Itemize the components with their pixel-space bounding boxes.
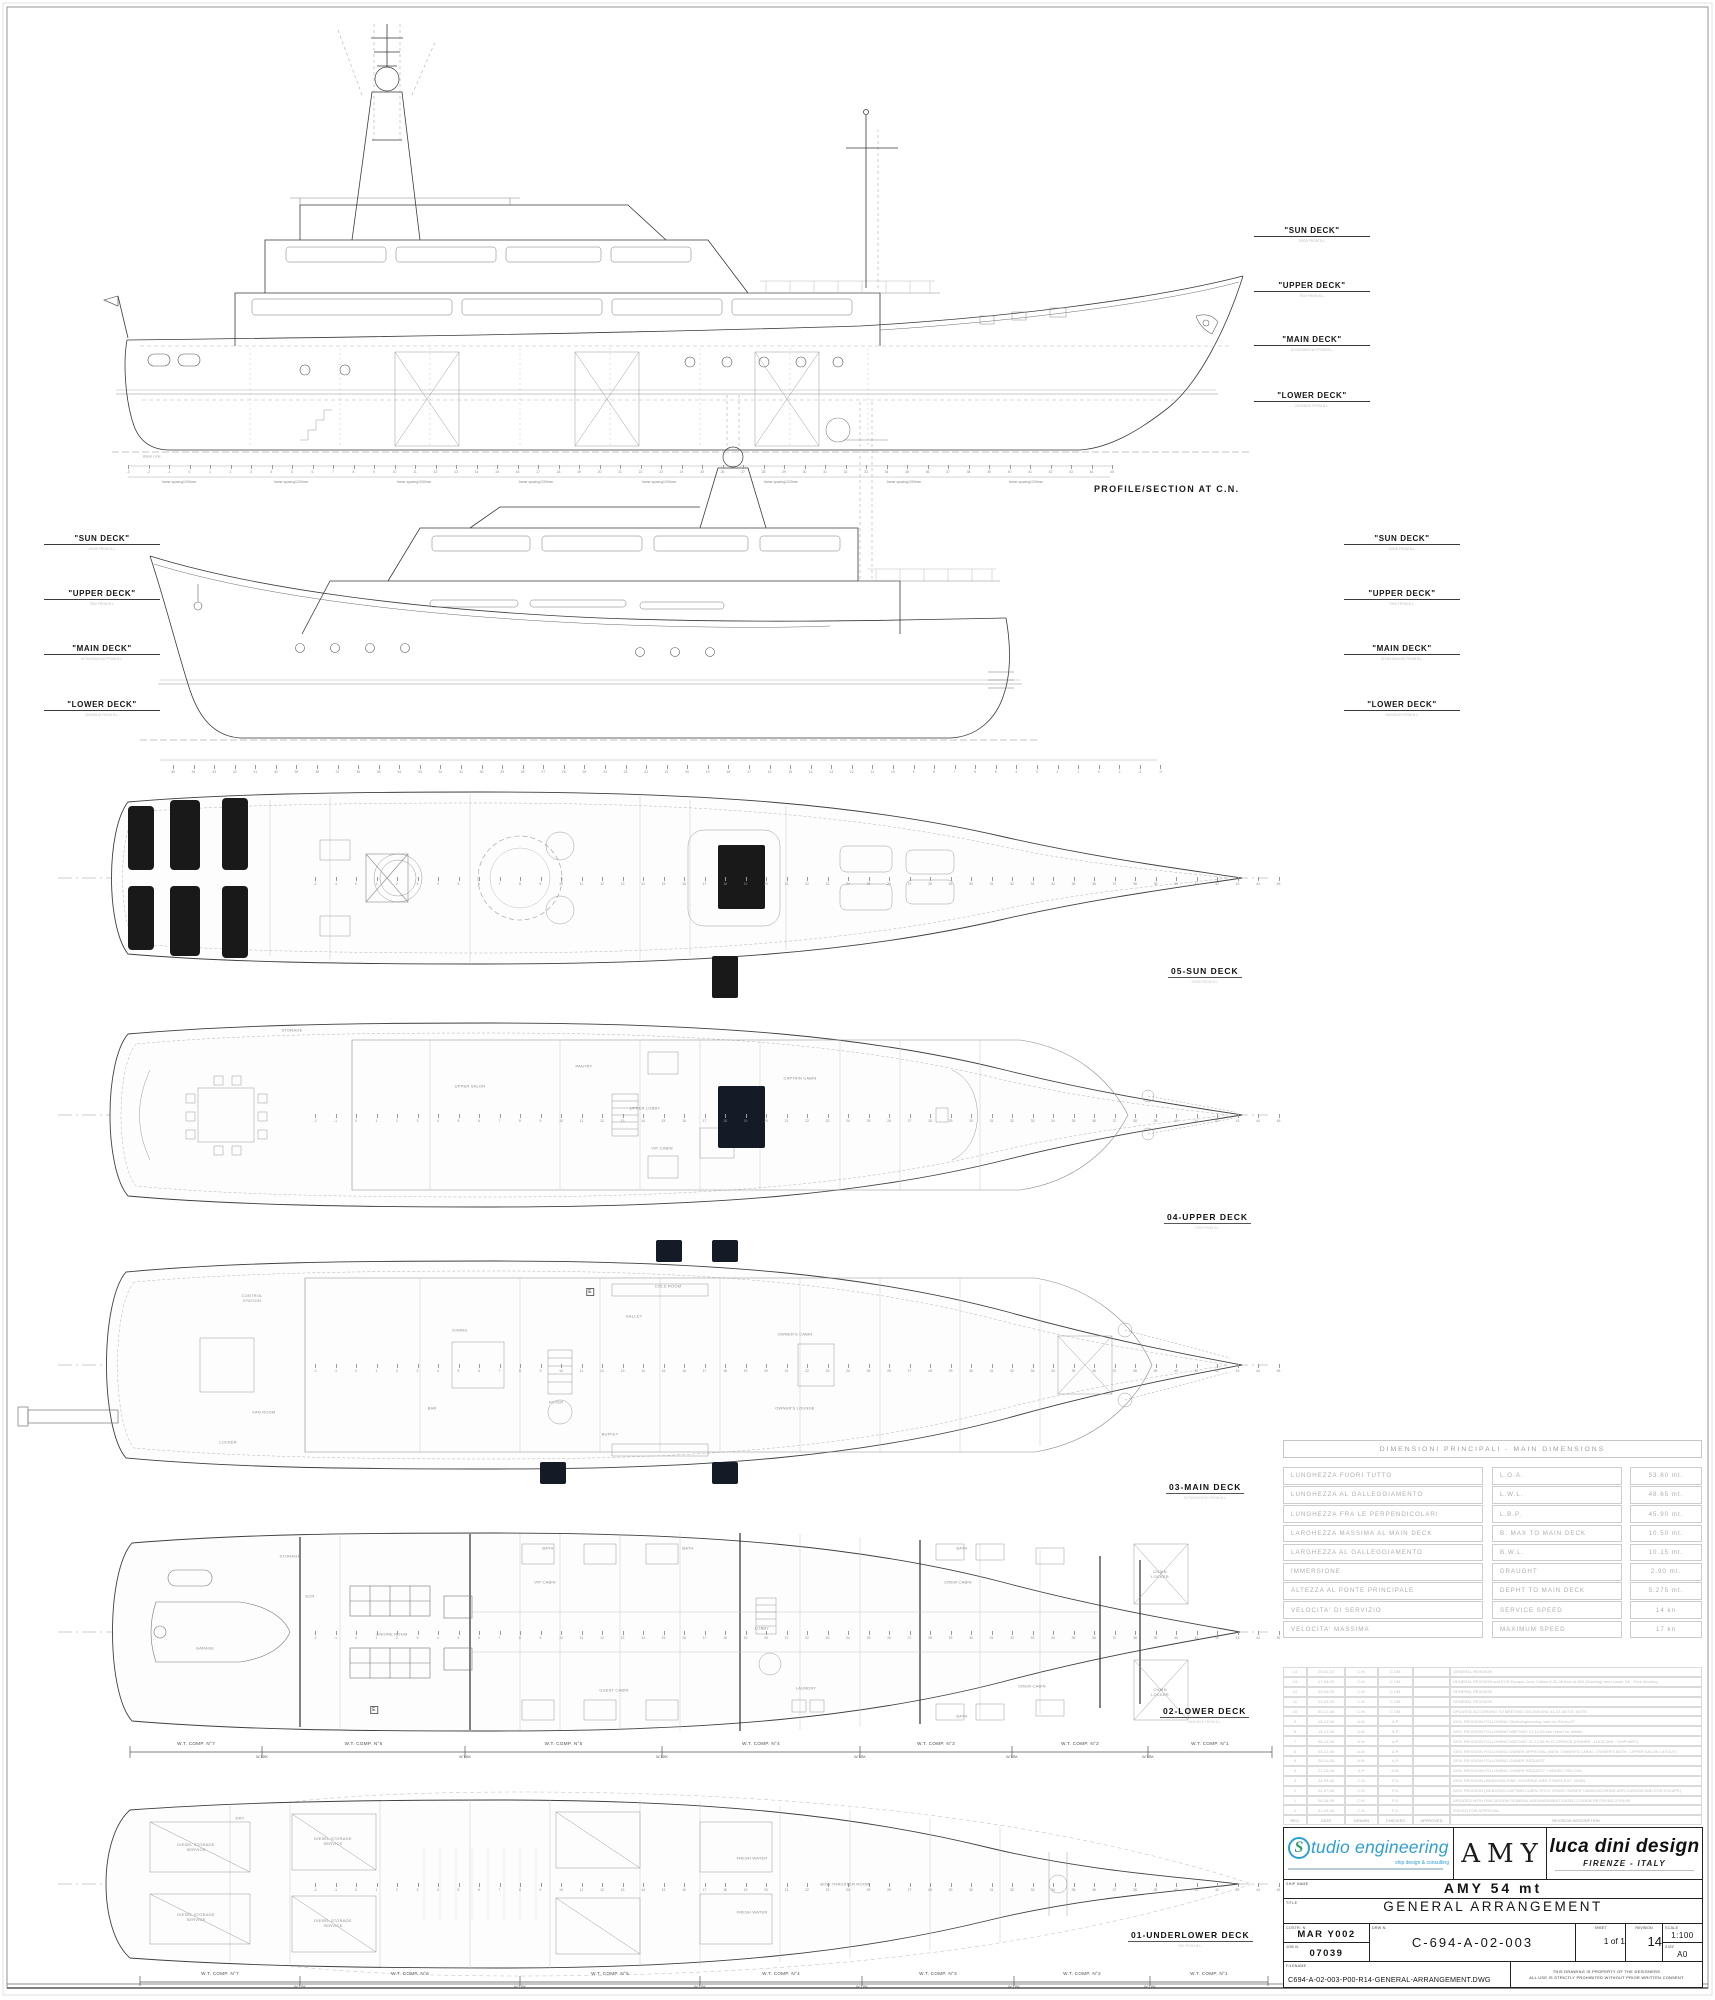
frame-number: 29 <box>782 470 786 474</box>
wt-bulkhead-label: W.T.BK <box>694 1985 706 1989</box>
frame-tick <box>356 1114 357 1118</box>
revision-cell <box>1413 1726 1450 1736</box>
frame-number: 4 <box>437 882 439 886</box>
frame-number: 28 <box>521 770 525 774</box>
frame-tick <box>1094 1114 1095 1118</box>
frame-tick <box>1135 1364 1136 1368</box>
frame-number: 43 <box>1236 1636 1240 1640</box>
frame-tick <box>807 1631 808 1635</box>
frame-tick <box>459 1631 460 1635</box>
revision-cell: 12 <box>1283 1687 1307 1697</box>
revision-cell: CHECKED <box>1378 1815 1413 1825</box>
frame-number: 27 <box>908 1119 912 1123</box>
wt-compartment-label: W.T. COMP. N°2 <box>1063 1971 1101 1976</box>
frame-tick <box>1258 1364 1259 1368</box>
frame-number: -1 <box>334 1888 337 1892</box>
profile-section-view <box>104 24 1252 477</box>
luca-dini-brand: luca dini design <box>1550 1836 1700 1858</box>
wt-compartment-label: W.T. COMP. N°5 <box>545 1741 583 1746</box>
revision-cell: C.M. <box>1345 1786 1378 1796</box>
frame-tick <box>1033 877 1034 881</box>
wt-compartment-label: W.T. COMP. N°6 <box>391 1971 429 1976</box>
frame-number: 44 <box>1256 1119 1260 1123</box>
frame-number: 17 <box>703 1636 707 1640</box>
deck-level-label: "LOWER DECK"2600/3615 FROM B.L. <box>1344 700 1460 717</box>
frame-number: 34 <box>1051 1119 1055 1123</box>
frame-number: 27 <box>908 1888 912 1892</box>
frame-tick <box>315 1631 316 1635</box>
frame-number: 2 <box>396 882 398 886</box>
frame-tick <box>235 765 236 769</box>
annotation-label: CONTROL STATION <box>242 1293 263 1303</box>
frame-tick <box>893 765 894 769</box>
dim-name-en: DRAUGHT <box>1492 1563 1622 1581</box>
frame-tick <box>746 1364 747 1368</box>
frame-spacing-label: frame spacing1200mm <box>519 480 554 484</box>
frame-number: 17 <box>703 882 707 886</box>
frame-tick <box>934 765 935 769</box>
wt-bulkhead-label: W.T.BK <box>1008 1985 1020 1989</box>
frame-number: 1 <box>376 1636 378 1640</box>
frame-number: 10 <box>559 882 563 886</box>
frame-number: 13 <box>621 1636 625 1640</box>
frame-number: 3 <box>417 1119 419 1123</box>
frame-tick <box>930 877 931 881</box>
frame-number: 22 <box>644 770 648 774</box>
plan-subtitle: 7900 FROM B.L. <box>1164 1226 1251 1230</box>
frame-tick <box>807 1364 808 1368</box>
frame-tick <box>1238 877 1239 881</box>
frame-number: 27 <box>908 1369 912 1373</box>
frame-number: 37 <box>1113 1888 1117 1892</box>
frame-tick <box>602 1114 603 1118</box>
frame-number: 4 <box>271 470 273 474</box>
frame-number: 15 <box>495 470 499 474</box>
frame-number: 25 <box>867 882 871 886</box>
annotation-label: GALLEY <box>626 1313 643 1318</box>
frame-tick <box>1012 1883 1013 1887</box>
frame-tick <box>725 1114 726 1118</box>
wt-compartment-label: W.T. COMP. N°7 <box>201 1971 239 1976</box>
plan-title: 02-LOWER DECK <box>1160 1706 1249 1718</box>
frame-tick <box>315 1114 316 1118</box>
revision-cell: A.M. <box>1345 1716 1378 1726</box>
frame-tick <box>889 1883 890 1887</box>
frame-tick <box>500 877 501 881</box>
frame-number: 45 <box>1277 1636 1281 1640</box>
deck-level-name: "MAIN DECK" <box>1344 644 1460 655</box>
frame-number: 8 <box>519 1888 521 1892</box>
frame-tick <box>356 877 357 881</box>
annotation-label: FAN ROOM <box>253 1409 276 1414</box>
wt-compartment-label: W.T. COMP. N°2 <box>1061 1741 1099 1746</box>
revision-row: 704-12-08A.M.A.P.GEN. REVISION FOLLOWING… <box>1283 1736 1702 1746</box>
frame-number: 22 <box>805 1636 809 1640</box>
deck-level-height: 10535 FROM B.L. <box>1344 547 1460 551</box>
frame-tick <box>1176 877 1177 881</box>
frame-number: 36 <box>1092 882 1096 886</box>
annotation-label: FOYER <box>549 1399 564 1404</box>
scale-value: 1:100 <box>1671 1931 1694 1940</box>
frame-number: 25 <box>867 1888 871 1892</box>
frame-number: 0 <box>355 1369 357 1373</box>
frame-tick <box>1115 1883 1116 1887</box>
frame-tick <box>1156 1883 1157 1887</box>
frame-number: 37 <box>946 470 950 474</box>
frame-tick <box>479 1631 480 1635</box>
revision-cell: ISSUED FOR APPROVAL <box>1450 1805 1702 1815</box>
frame-tick <box>684 1364 685 1368</box>
frame-tick <box>971 1114 972 1118</box>
frame-number: 43 <box>1236 882 1240 886</box>
frame-tick <box>1217 1114 1218 1118</box>
frame-tick <box>766 1114 767 1118</box>
frame-tick <box>1099 765 1100 769</box>
frame-tick <box>831 765 832 769</box>
frame-tick <box>336 1883 337 1887</box>
frame-number: 34 <box>1051 882 1055 886</box>
frame-tick <box>623 1114 624 1118</box>
frame-tick <box>128 465 129 469</box>
frame-tick <box>582 1883 583 1887</box>
frame-number: 2 <box>230 470 232 474</box>
drw-value: C-694-A-02-003 <box>1412 1935 1533 1950</box>
frame-number: 6 <box>312 470 314 474</box>
dim-name-en: SERVICE SPEED <box>1492 1601 1622 1619</box>
frame-number: 41 <box>1195 1369 1199 1373</box>
job-value: 07039 <box>1310 1948 1344 1959</box>
frame-tick <box>541 1631 542 1635</box>
deck-level-name: "SUN DECK" <box>44 534 160 545</box>
frame-number: 9 <box>540 1369 542 1373</box>
dims-row: LARGHEZZA MASSIMA AL MAIN DECKB. MAX TO … <box>1283 1525 1702 1543</box>
frame-tick <box>1094 877 1095 881</box>
frame-number: 29 <box>949 1119 953 1123</box>
frame-tick <box>1053 1883 1054 1887</box>
frame-tick <box>502 765 503 769</box>
deck-level-height: 10535 FROM B.L. <box>1254 239 1370 243</box>
frame-spacing-label: frame spacing1000mm <box>397 480 432 484</box>
frame-tick <box>479 877 480 881</box>
frame-tick <box>543 765 544 769</box>
frame-number: 7 <box>499 1636 501 1640</box>
frame-number: 23 <box>826 1636 830 1640</box>
frame-tick <box>520 1631 521 1635</box>
frame-tick <box>1140 765 1141 769</box>
frame-tick <box>541 877 542 881</box>
frame-number: 24 <box>846 1636 850 1640</box>
revision-cell: 11 <box>1283 1697 1307 1707</box>
frame-tick <box>1078 765 1079 769</box>
frame-number: 27 <box>908 882 912 886</box>
deck-level-height: 10535 FROM B.L. <box>44 547 160 551</box>
revision-header-row: REV.DATEDRAWNCHECKEDAPPROVEDREVISION DES… <box>1283 1815 1702 1825</box>
revision-cell <box>1413 1786 1450 1796</box>
revision-cell: F.G. <box>1378 1805 1413 1815</box>
frame-tick <box>582 1114 583 1118</box>
annotation-label: CREW CABIN <box>944 1579 972 1584</box>
frame-tick <box>1074 1883 1075 1887</box>
frame-number: 36 <box>1092 1119 1096 1123</box>
frame-number: 45 <box>1110 470 1114 474</box>
frame-tick <box>869 877 870 881</box>
frame-tick <box>397 1114 398 1118</box>
frame-number: 26 <box>887 1888 891 1892</box>
frame-number: 31 <box>990 1636 994 1640</box>
frame-number: 41 <box>1195 1636 1199 1640</box>
frame-number: 2 <box>396 1119 398 1123</box>
frame-tick <box>807 877 808 881</box>
revision-cell: 21-10-08 <box>1307 1766 1345 1776</box>
frame-number: 1 <box>376 882 378 886</box>
drawing-title-label: TITLE <box>1286 1901 1297 1905</box>
frame-tick <box>459 877 460 881</box>
annotation-label: DINING <box>452 1327 467 1332</box>
frame-number: 36 <box>1092 1888 1096 1892</box>
revision-row: 915-12-08A.M.A.P.GEN. REVISION FOLLOWING… <box>1283 1716 1702 1726</box>
frame-tick <box>500 1631 501 1635</box>
filename-value: C694-A-02-003-P00-R14-GENERAL-ARRANGEMEN… <box>1288 1975 1491 1984</box>
revision-cell: UPDATED WITH DINI DESIGN GENERAL ARRANGE… <box>1450 1796 1702 1806</box>
frame-tick <box>1053 1364 1054 1368</box>
revision-value: 14 <box>1648 1934 1662 1949</box>
frame-number: 39 <box>1154 1369 1158 1373</box>
frame-number: 39 <box>1154 1119 1158 1123</box>
luca-dini-logo: luca dini design FIRENZE - ITALY <box>1547 1828 1702 1879</box>
dim-name-it: IMMERSIONE <box>1283 1563 1483 1581</box>
deck-level-height: 5275/4150/4740 FROM B.L. <box>44 657 160 661</box>
frame-number: 26 <box>887 1119 891 1123</box>
frame-number: 20 <box>764 882 768 886</box>
frame-number: 4 <box>437 1888 439 1892</box>
frame-number: 39 <box>1154 1636 1158 1640</box>
frame-number: 0 <box>355 882 357 886</box>
frame-number: 30 <box>803 470 807 474</box>
frame-number: 21 <box>785 882 789 886</box>
frame-number: 8 <box>519 1636 521 1640</box>
frame-number: 7 <box>954 770 956 774</box>
revision-cell: REV. <box>1283 1815 1307 1825</box>
frame-number: 40 <box>1174 1636 1178 1640</box>
frame-tick <box>749 765 750 769</box>
frame-tick <box>1279 1883 1280 1887</box>
frame-number: 6 <box>478 882 480 886</box>
frame-tick <box>828 1364 829 1368</box>
annotation-label: DIESEL STORAGE SERVICE <box>177 1912 214 1922</box>
revision-cell: 29-01-10 <box>1307 1667 1345 1677</box>
frame-number: 16 <box>516 470 520 474</box>
revision-cell <box>1413 1716 1450 1726</box>
frame-tick <box>1135 1883 1136 1887</box>
annotation-label: STORAGE <box>280 1553 301 1558</box>
frame-tick <box>336 1114 337 1118</box>
revision-cell: C.CM. <box>1378 1697 1413 1707</box>
frame-number: 23 <box>826 1888 830 1892</box>
frame-number: 25 <box>867 1636 871 1640</box>
frame-number: 45 <box>1277 882 1281 886</box>
annotation-label: LOCKER <box>219 1439 237 1444</box>
revision-cell: A.P. <box>1378 1756 1413 1766</box>
frame-number: 37 <box>1113 1636 1117 1640</box>
frame-number: 0 <box>189 470 191 474</box>
ship-name-label: SHIP NAME <box>1286 1882 1308 1886</box>
frame-number: 25 <box>867 1119 871 1123</box>
frame-tick <box>336 1631 337 1635</box>
dim-value: 45.90 mt. <box>1630 1505 1702 1523</box>
frame-number: 32 <box>1010 1636 1014 1640</box>
revision-row: 1429-01-10C.M.C.CM.GENERAL REVISION <box>1283 1667 1702 1677</box>
frame-number: 43 <box>1236 1119 1240 1123</box>
revision-cell: GENERAL REVISION and ECR Escape-Crew Cab… <box>1450 1677 1702 1687</box>
frame-tick <box>479 1883 480 1887</box>
revision-cell: C.CM. <box>1378 1687 1413 1697</box>
frame-tick <box>725 1631 726 1635</box>
frame-number: 42 <box>1049 470 1053 474</box>
revision-row: 1030-12-08C.M.C.CM.UPDATED ACCORDING TO … <box>1283 1707 1702 1717</box>
frame-number: 19 <box>577 470 581 474</box>
frame-tick <box>705 1631 706 1635</box>
annotation-label: BUFFET <box>602 1431 619 1436</box>
frame-tick <box>564 765 565 769</box>
frame-number: 10 <box>559 1369 563 1373</box>
frame-number: 22 <box>805 1888 809 1892</box>
frame-number: 4 <box>1015 770 1017 774</box>
frame-number: -1 <box>334 882 337 886</box>
frame-number: 13 <box>829 770 833 774</box>
frame-number: 26 <box>887 882 891 886</box>
frame-tick <box>643 1883 644 1887</box>
wt-compartment-label: W.T. COMP. N°4 <box>762 1971 800 1976</box>
annotation-label: CAPTAIN CABIN <box>784 1075 817 1080</box>
drawing-title-value: GENERAL ARRANGEMENT <box>1284 1899 1702 1914</box>
frame-number: 33 <box>1031 1119 1035 1123</box>
frame-tick <box>356 1883 357 1887</box>
wt-compartment-label: W.T. COMP. N°4 <box>742 1741 780 1746</box>
frame-number: 14 <box>641 1888 645 1892</box>
annotation-label: GARAGE <box>196 1645 214 1650</box>
frame-number: 34 <box>1051 1636 1055 1640</box>
frame-tick <box>255 765 256 769</box>
frame-number: 15 <box>662 1119 666 1123</box>
frame-tick <box>1197 1114 1198 1118</box>
annotation-label: CHAIN LOCKER <box>1151 1569 1169 1579</box>
frame-number: 23 <box>659 470 663 474</box>
revision-cell: A.M. <box>1378 1766 1413 1776</box>
frame-number: 36 <box>926 470 930 474</box>
frame-tick <box>1176 1114 1177 1118</box>
frame-number: 28 <box>762 470 766 474</box>
frame-tick <box>728 765 729 769</box>
filename-label: FILENAME <box>1286 1964 1306 1968</box>
frame-number: 15 <box>662 882 666 886</box>
frame-number: 37 <box>336 770 340 774</box>
frame-number: -1 <box>334 1636 337 1640</box>
dim-name-it: VELOCITA' DI SERVIZIO <box>1283 1601 1483 1619</box>
frame-number: 38 <box>1133 1369 1137 1373</box>
frame-number: 23 <box>624 770 628 774</box>
frame-tick <box>1238 1883 1239 1887</box>
frame-number: 15 <box>788 770 792 774</box>
frame-number: 30 <box>969 1636 973 1640</box>
frame-number: 17 <box>703 1369 707 1373</box>
deck-level-label: "UPPER DECK"7900 FROM B.L. <box>1344 589 1460 606</box>
annotation-label: DIESEL STORAGE SERVICE <box>177 1842 214 1852</box>
frame-tick <box>1135 877 1136 881</box>
frame-number: 33 <box>1031 1369 1035 1373</box>
frame-tick <box>173 765 174 769</box>
frame-tick <box>440 765 441 769</box>
dims-row: LUNGHEZZA FUORI TUTTOL.O.A.53.80 mt. <box>1283 1467 1702 1485</box>
frame-number: 39 <box>295 770 299 774</box>
frame-tick <box>1238 1364 1239 1368</box>
revision-cell: C.M. <box>1345 1805 1378 1815</box>
frame-number: 44 <box>192 770 196 774</box>
revision-label: REVISION <box>1626 1926 1662 1930</box>
frame-number: 33 <box>418 770 422 774</box>
frame-number: 8 <box>933 770 935 774</box>
frame-number: 42 <box>233 770 237 774</box>
revision-cell: A.P. <box>1378 1746 1413 1756</box>
plan-title: 05-SUN DECK <box>1168 966 1242 978</box>
frame-tick <box>667 765 668 769</box>
frame-number: 35 <box>1072 1888 1076 1892</box>
frame-tick <box>828 1114 829 1118</box>
frame-number: 25 <box>583 770 587 774</box>
frame-tick <box>746 1631 747 1635</box>
frame-number: 6 <box>478 1636 480 1640</box>
frame-number: 3 <box>417 882 419 886</box>
revision-cell: F.G. <box>1378 1776 1413 1786</box>
frame-number: 20 <box>764 1369 768 1373</box>
frame-number: 31 <box>459 770 463 774</box>
frame-number: 35 <box>1072 882 1076 886</box>
frame-number: 20 <box>764 1888 768 1892</box>
frame-tick <box>231 465 232 469</box>
frame-number: -1 <box>167 470 170 474</box>
frame-number: 5 <box>458 1636 460 1640</box>
frame-tick <box>397 877 398 881</box>
frame-tick <box>825 465 826 469</box>
frame-number: 5 <box>291 470 293 474</box>
frame-tick <box>605 765 606 769</box>
annotation-label: UPPER SALON <box>455 1083 486 1088</box>
frame-number: 33 <box>864 470 868 474</box>
frame-number: 8 <box>519 882 521 886</box>
frame-number: 6 <box>478 1119 480 1123</box>
frame-number: 29 <box>949 1888 953 1892</box>
frame-number: 35 <box>1072 1636 1076 1640</box>
annotation-label: DIESEL STORAGE SERVICE <box>314 1918 351 1928</box>
frame-number: 22 <box>639 470 643 474</box>
revision-cell: 14 <box>1283 1667 1307 1677</box>
frame-tick <box>1030 465 1031 469</box>
frame-tick <box>643 877 644 881</box>
plan-subtitle: 650 FROM B.L. <box>1128 1944 1253 1948</box>
frame-tick <box>951 1883 952 1887</box>
frame-tick <box>561 1631 562 1635</box>
plan-label-lower-deck: 02-LOWER DECK 2600/3615 FROM B.L. <box>1160 1706 1249 1724</box>
revision-cell: A.P. <box>1378 1716 1413 1726</box>
frame-number: 1 <box>376 1119 378 1123</box>
frame-number: 32 <box>844 470 848 474</box>
frame-tick <box>1160 765 1161 769</box>
frame-number: 16 <box>682 1369 686 1373</box>
frame-number: 28 <box>928 1119 932 1123</box>
frame-tick <box>996 765 997 769</box>
frame-tick <box>1258 1631 1259 1635</box>
frame-number: 35 <box>1072 1369 1076 1373</box>
frame-number: 24 <box>846 1369 850 1373</box>
